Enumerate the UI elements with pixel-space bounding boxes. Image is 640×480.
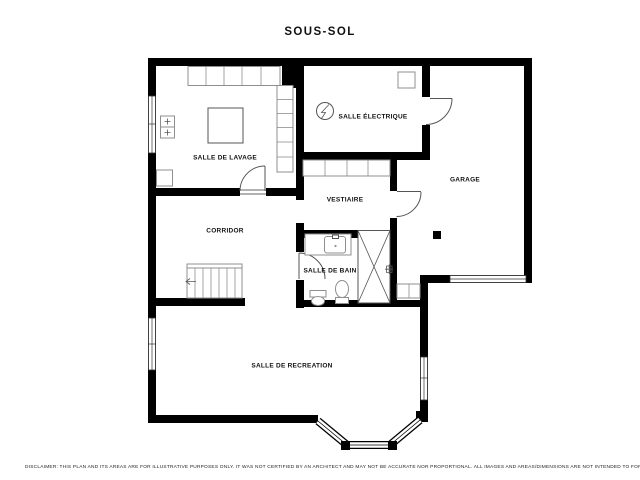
wall-right <box>524 58 532 283</box>
stairs <box>186 264 242 298</box>
room-label-salle-de-lavage: SALLE DE LAVAGE <box>193 155 257 162</box>
laundry-fixtures <box>157 67 294 187</box>
faucet-icon <box>333 235 339 239</box>
floor-plan-page: SOUS-SOL <box>0 0 640 480</box>
opening-corridor-vestiaire <box>296 200 304 223</box>
toilet2-bowl-icon <box>336 281 349 298</box>
vestiaire-garage-door-swing <box>397 192 422 217</box>
laundry-island <box>208 108 243 143</box>
toilet2-base-icon <box>336 298 349 304</box>
garage-fixtures <box>397 231 441 298</box>
electrical-panel-icon <box>317 103 334 120</box>
wall-lavage-corridor <box>148 188 296 196</box>
wall-top <box>148 58 532 66</box>
shower-fixture-icon <box>385 265 393 275</box>
laundry-lower-cabinet <box>157 170 173 186</box>
bay-window <box>318 420 420 450</box>
room-label-corridor: CORRIDOR <box>206 228 243 235</box>
storage-nook-cabinet <box>397 284 420 298</box>
room-label-salle-de-recreation: SALLE DE RECREATION <box>251 363 332 370</box>
room-label-salle-electrique: SALLE ÉLECTRIQUE <box>338 114 407 121</box>
laundry-counter <box>188 67 280 86</box>
opening-electrique-door <box>422 97 430 125</box>
wall-electrique-bottom <box>296 152 430 160</box>
laundry-cabinet-column <box>277 86 293 173</box>
wall-bottom <box>148 415 318 423</box>
room-label-salle-de-bain: SALLE DE BAIN <box>303 268 356 275</box>
electrical-equipment-box <box>398 72 415 88</box>
floor-plan-drawing <box>0 0 640 480</box>
lavage-door-swing <box>240 166 265 191</box>
structural-column-icon <box>433 231 441 239</box>
stairs-landing-edge <box>187 264 242 268</box>
electrical-room-fixtures <box>317 72 416 120</box>
opening-lavage-door <box>240 188 266 196</box>
toilet-bowl-icon <box>312 297 325 306</box>
disclaimer-text: DISCLAIMER: THIS PLAN AND ITS AREAS ARE … <box>25 465 630 470</box>
room-label-garage: GARAGE <box>450 177 480 184</box>
wall-corridor-recreation <box>148 298 245 306</box>
opening-bathroom-door <box>296 252 304 280</box>
chimney-block <box>282 58 298 88</box>
room-label-vestiaire: VESTIAIRE <box>327 197 364 204</box>
vestiaire-fixtures <box>303 160 390 176</box>
opening-vestiaire-garage-door <box>390 191 397 218</box>
vestiaire-closet-row <box>303 160 390 176</box>
